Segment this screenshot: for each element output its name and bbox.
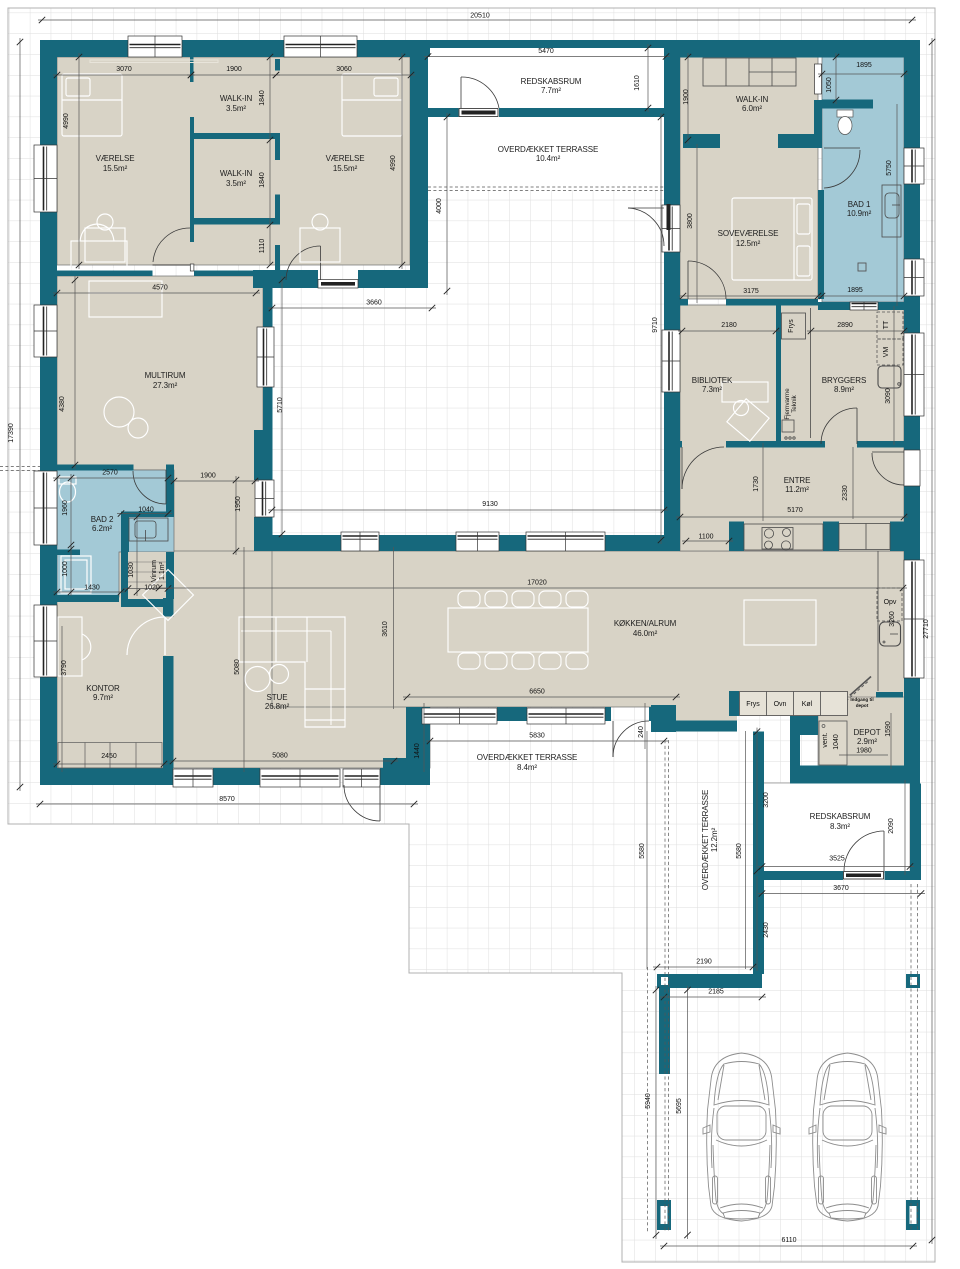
svg-text:27710: 27710 (923, 619, 930, 639)
svg-text:Teknik: Teknik (791, 394, 798, 412)
svg-text:Opv: Opv (884, 599, 897, 606)
svg-text:1895: 1895 (856, 62, 872, 69)
svg-text:Frys: Frys (746, 701, 760, 708)
svg-text:5080: 5080 (234, 659, 241, 675)
svg-text:3200: 3200 (763, 792, 770, 808)
svg-text:6110: 6110 (781, 1237, 796, 1244)
svg-text:3660: 3660 (366, 300, 382, 307)
svg-text:OVERDÆKKET TERRASSE: OVERDÆKKET TERRASSE (701, 790, 710, 891)
svg-text:SOVEVÆRELSE: SOVEVÆRELSE (718, 229, 779, 238)
svg-text:3790: 3790 (61, 660, 68, 676)
svg-text:8570: 8570 (219, 796, 235, 803)
svg-text:7.7m²: 7.7m² (541, 86, 561, 95)
svg-text:1050: 1050 (826, 77, 833, 93)
svg-text:4000: 4000 (436, 198, 443, 214)
svg-text:5080: 5080 (272, 753, 288, 760)
svg-text:1030: 1030 (128, 562, 135, 578)
svg-text:5710: 5710 (277, 397, 284, 413)
svg-text:5470: 5470 (538, 48, 554, 55)
svg-text:8.4m²: 8.4m² (517, 763, 537, 772)
svg-text:2890: 2890 (837, 322, 853, 329)
svg-text:1440: 1440 (414, 743, 421, 759)
svg-text:6.0m²: 6.0m² (742, 104, 762, 113)
svg-text:2450: 2450 (101, 753, 117, 760)
svg-text:3525: 3525 (829, 856, 845, 863)
svg-text:5940: 5940 (645, 1093, 652, 1109)
svg-text:1980: 1980 (856, 748, 872, 755)
svg-text:5695: 5695 (676, 1098, 683, 1114)
svg-text:1100: 1100 (698, 534, 713, 541)
svg-text:8.9m²: 8.9m² (834, 385, 854, 394)
svg-text:15.5m²: 15.5m² (103, 164, 128, 173)
svg-text:4570: 4570 (152, 285, 168, 292)
svg-text:3090: 3090 (885, 388, 892, 404)
svg-text:WALK-IN: WALK-IN (736, 95, 769, 104)
svg-text:Ovn: Ovn (774, 701, 787, 708)
svg-text:11.2m²: 11.2m² (785, 485, 809, 494)
svg-text:1960: 1960 (62, 500, 69, 516)
svg-text:1900: 1900 (226, 66, 242, 73)
svg-text:2185: 2185 (708, 989, 724, 996)
svg-text:1040: 1040 (833, 734, 840, 750)
svg-text:KØKKEN/ALRUM: KØKKEN/ALRUM (614, 619, 677, 628)
svg-text:5830: 5830 (529, 733, 545, 740)
svg-text:BIBLIOTEK: BIBLIOTEK (692, 376, 733, 385)
svg-text:Fjernvarme: Fjernvarme (784, 388, 791, 420)
svg-text:3.5m²: 3.5m² (226, 104, 246, 113)
svg-text:5580: 5580 (736, 843, 743, 859)
svg-text:OVERDÆKKET TERRASSE: OVERDÆKKET TERRASSE (477, 753, 578, 762)
svg-text:3.5m²: 3.5m² (226, 179, 246, 188)
svg-text:1000: 1000 (62, 561, 69, 577)
svg-text:5170: 5170 (787, 507, 803, 514)
svg-text:1895: 1895 (847, 287, 863, 294)
svg-text:1730: 1730 (753, 476, 760, 492)
svg-text:27.3m²: 27.3m² (153, 381, 178, 390)
svg-text:10.4m²: 10.4m² (536, 154, 561, 163)
svg-text:1610: 1610 (634, 75, 641, 91)
svg-text:1900: 1900 (683, 89, 690, 105)
svg-text:3260: 3260 (889, 611, 896, 627)
svg-text:MULTIRUM: MULTIRUM (145, 371, 186, 380)
svg-text:1110: 1110 (259, 239, 266, 254)
svg-text:3175: 3175 (743, 288, 759, 295)
svg-text:5750: 5750 (886, 160, 893, 176)
svg-text:vent.: vent. (822, 732, 829, 747)
svg-text:3800: 3800 (687, 213, 694, 229)
svg-text:2570: 2570 (102, 470, 118, 477)
svg-text:4990: 4990 (63, 113, 70, 129)
svg-text:TT: TT (883, 320, 890, 329)
svg-text:BRYGGERS: BRYGGERS (822, 376, 866, 385)
svg-text:6.2m²: 6.2m² (92, 524, 112, 533)
svg-text:2190: 2190 (696, 959, 712, 966)
svg-text:Køl: Køl (802, 701, 813, 708)
svg-text:8.3m²: 8.3m² (830, 822, 850, 831)
svg-text:1840: 1840 (259, 90, 266, 106)
svg-text:VÆRELSE: VÆRELSE (326, 154, 365, 163)
svg-text:3670: 3670 (833, 885, 849, 892)
svg-text:DEPOT: DEPOT (853, 728, 880, 737)
svg-text:OVERDÆKKET TERRASSE: OVERDÆKKET TERRASSE (498, 145, 599, 154)
svg-text:2330: 2330 (842, 485, 849, 501)
svg-text:26.8m²: 26.8m² (265, 702, 290, 711)
svg-text:3070: 3070 (116, 66, 132, 73)
svg-text:1.1m²: 1.1m² (159, 561, 166, 580)
svg-text:BAD 2: BAD 2 (91, 515, 114, 524)
svg-text:WALK-IN: WALK-IN (220, 169, 253, 178)
svg-text:1950: 1950 (235, 496, 242, 512)
svg-text:1900: 1900 (200, 473, 216, 480)
svg-text:2.9m²: 2.9m² (857, 737, 877, 746)
svg-text:Frys: Frys (788, 319, 795, 333)
svg-text:REDSKABSRUM: REDSKABSRUM (521, 77, 582, 86)
svg-text:12.5m²: 12.5m² (736, 239, 761, 248)
svg-text:15.5m²: 15.5m² (333, 164, 358, 173)
svg-text:1430: 1430 (84, 585, 100, 592)
svg-text:4990: 4990 (390, 155, 397, 171)
svg-text:240: 240 (638, 726, 645, 738)
svg-text:Indgang til: Indgang til (850, 697, 873, 702)
svg-text:STUE: STUE (267, 693, 288, 702)
svg-text:5580: 5580 (639, 843, 646, 859)
svg-text:6650: 6650 (529, 689, 545, 696)
svg-text:2090: 2090 (888, 818, 895, 834)
svg-text:9710: 9710 (652, 317, 659, 333)
svg-text:REDSKABSRUM: REDSKABSRUM (810, 812, 871, 821)
svg-text:depot: depot (856, 703, 869, 708)
svg-text:1040: 1040 (138, 507, 154, 514)
svg-text:VÆRELSE: VÆRELSE (96, 154, 135, 163)
svg-text:VM: VM (883, 347, 890, 358)
svg-text:9.7m²: 9.7m² (93, 693, 113, 702)
svg-text:Vinrum: Vinrum (151, 560, 158, 582)
svg-text:7.3m²: 7.3m² (702, 385, 722, 394)
svg-text:3060: 3060 (336, 66, 352, 73)
svg-text:17390: 17390 (8, 423, 15, 443)
svg-text:2180: 2180 (721, 322, 737, 329)
svg-text:3610: 3610 (382, 621, 389, 637)
svg-text:2430: 2430 (763, 922, 770, 938)
svg-text:20510: 20510 (470, 13, 490, 20)
svg-text:WALK-IN: WALK-IN (220, 94, 253, 103)
svg-text:1840: 1840 (259, 172, 266, 188)
svg-text:46.0m²: 46.0m² (633, 629, 658, 638)
svg-text:4380: 4380 (59, 396, 66, 412)
svg-text:ENTRE: ENTRE (784, 476, 811, 485)
svg-text:10.9m²: 10.9m² (847, 209, 872, 218)
svg-text:9130: 9130 (482, 501, 498, 508)
svg-text:12.2m²: 12.2m² (710, 827, 719, 852)
svg-text:1590: 1590 (885, 721, 892, 737)
svg-text:BAD 1: BAD 1 (848, 200, 871, 209)
svg-text:KONTOR: KONTOR (86, 684, 120, 693)
svg-text:17020: 17020 (527, 580, 547, 587)
